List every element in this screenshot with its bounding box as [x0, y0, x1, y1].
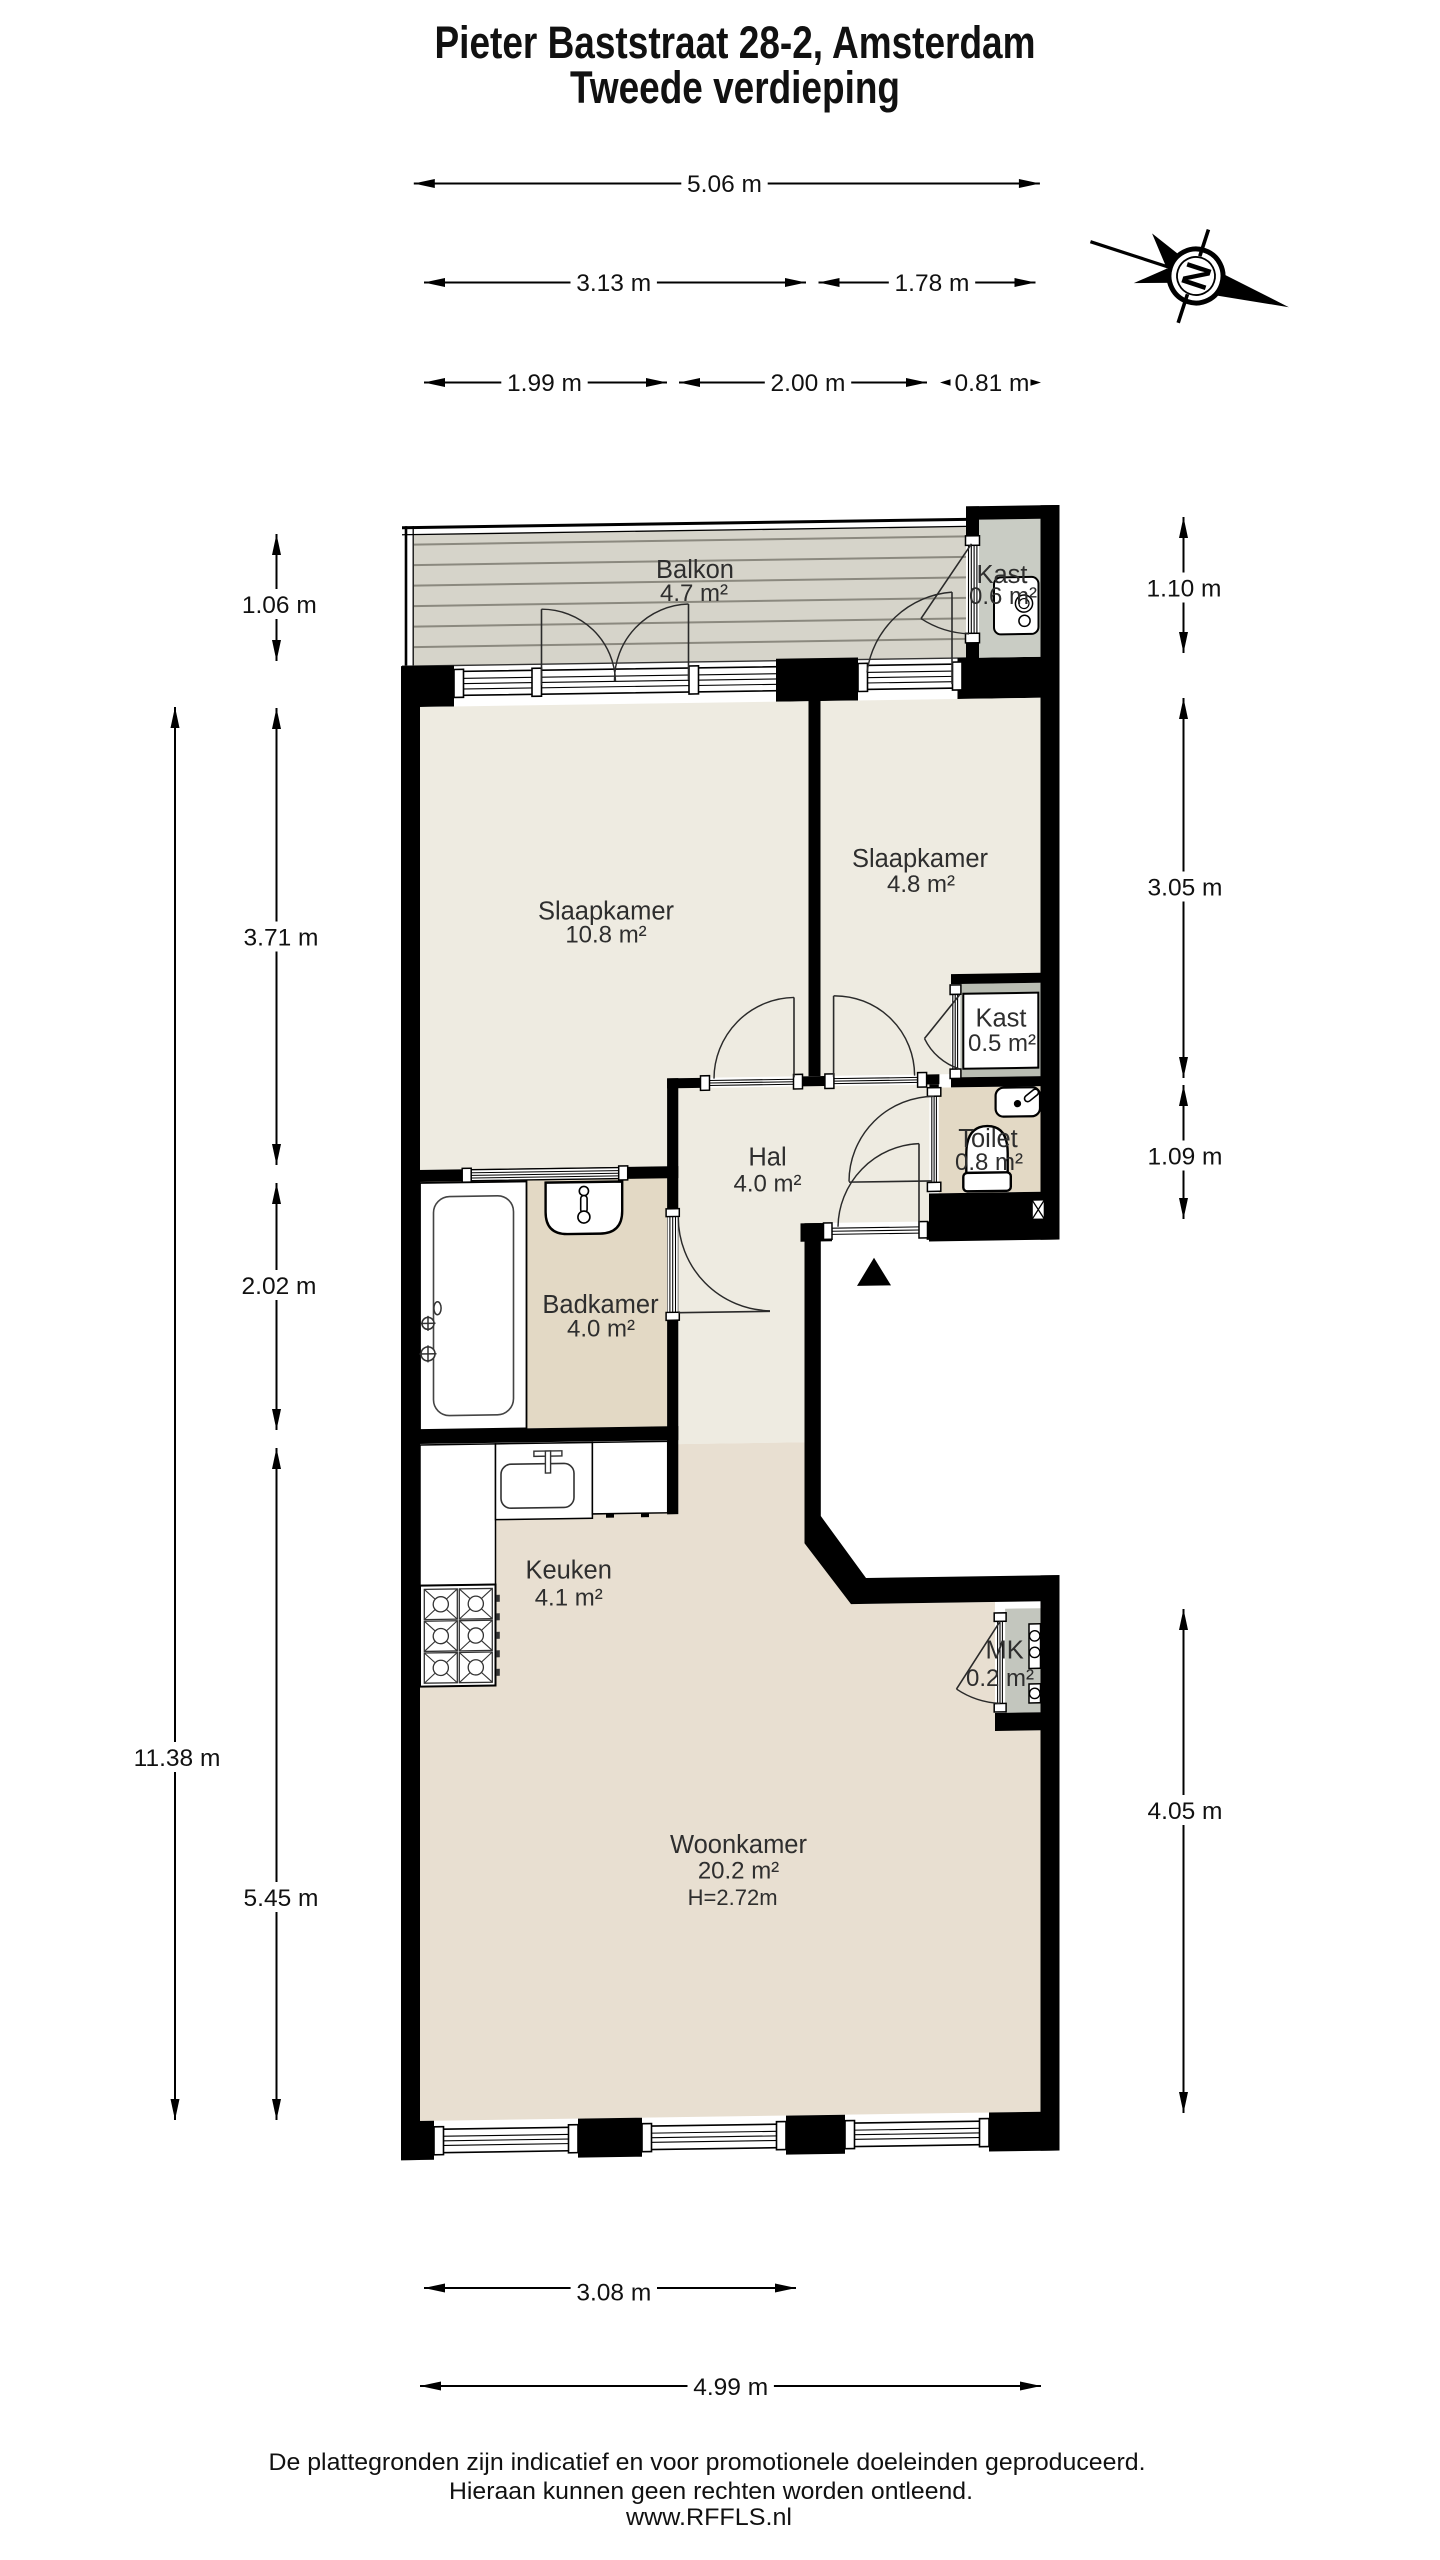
svg-text:1.06 m: 1.06 m: [242, 592, 317, 619]
svg-text:10.8 m²: 10.8 m²: [565, 922, 646, 949]
svg-text:3.13 m: 3.13 m: [576, 270, 651, 297]
svg-text:0.2 m²: 0.2 m²: [966, 1665, 1034, 1692]
svg-text:3.08 m: 3.08 m: [576, 2280, 651, 2307]
svg-text:Pieter Baststraat 28-2, Amster: Pieter Baststraat 28-2, Amsterdam: [435, 17, 1036, 68]
svg-text:Hieraan kunnen geen rechten wo: Hieraan kunnen geen rechten worden ontle…: [449, 2478, 973, 2505]
svg-text:11.38 m: 11.38 m: [134, 1745, 221, 1772]
svg-text:Woonkamer: Woonkamer: [670, 1831, 808, 1859]
svg-text:0.6 m²: 0.6 m²: [969, 583, 1037, 610]
svg-text:1.09 m: 1.09 m: [1148, 1144, 1223, 1171]
svg-text:0.5 m²: 0.5 m²: [968, 1030, 1036, 1057]
svg-text:Hal: Hal: [748, 1144, 786, 1172]
svg-text:De plattegronden zijn indicati: De plattegronden zijn indicatief en voor…: [269, 2449, 1146, 2476]
svg-text:4.1 m²: 4.1 m²: [535, 1585, 603, 1612]
svg-text:H=2.72m: H=2.72m: [688, 1885, 778, 1910]
svg-text:4.0 m²: 4.0 m²: [567, 1316, 635, 1343]
svg-text:www.RFFLS.nl: www.RFFLS.nl: [625, 2504, 792, 2531]
svg-text:Slaapkamer: Slaapkamer: [852, 845, 989, 873]
svg-text:MK: MK: [985, 1637, 1023, 1665]
svg-text:1.10 m: 1.10 m: [1147, 576, 1222, 603]
svg-text:4.8 m²: 4.8 m²: [887, 871, 955, 898]
svg-text:0.81 m: 0.81 m: [955, 370, 1030, 397]
svg-text:2.00 m: 2.00 m: [771, 370, 846, 397]
svg-text:4.0 m²: 4.0 m²: [733, 1171, 801, 1198]
svg-text:0.8 m²: 0.8 m²: [955, 1149, 1023, 1176]
svg-text:Kast: Kast: [975, 1005, 1026, 1033]
svg-text:1.78 m: 1.78 m: [895, 270, 970, 297]
svg-text:Keuken: Keuken: [525, 1557, 612, 1585]
svg-text:Tweede verdieping: Tweede verdieping: [570, 62, 900, 113]
svg-text:1.99 m: 1.99 m: [507, 370, 582, 397]
svg-text:2.02 m: 2.02 m: [242, 1273, 317, 1300]
svg-text:4.99 m: 4.99 m: [693, 2374, 768, 2401]
svg-text:3.71 m: 3.71 m: [244, 925, 319, 952]
svg-text:5.06 m: 5.06 m: [687, 171, 762, 198]
svg-text:3.05 m: 3.05 m: [1148, 875, 1223, 902]
svg-text:5.45 m: 5.45 m: [244, 1885, 319, 1912]
svg-text:4.05 m: 4.05 m: [1148, 1798, 1223, 1825]
svg-text:20.2 m²: 20.2 m²: [698, 1858, 779, 1885]
svg-text:4.7 m²: 4.7 m²: [660, 580, 728, 607]
